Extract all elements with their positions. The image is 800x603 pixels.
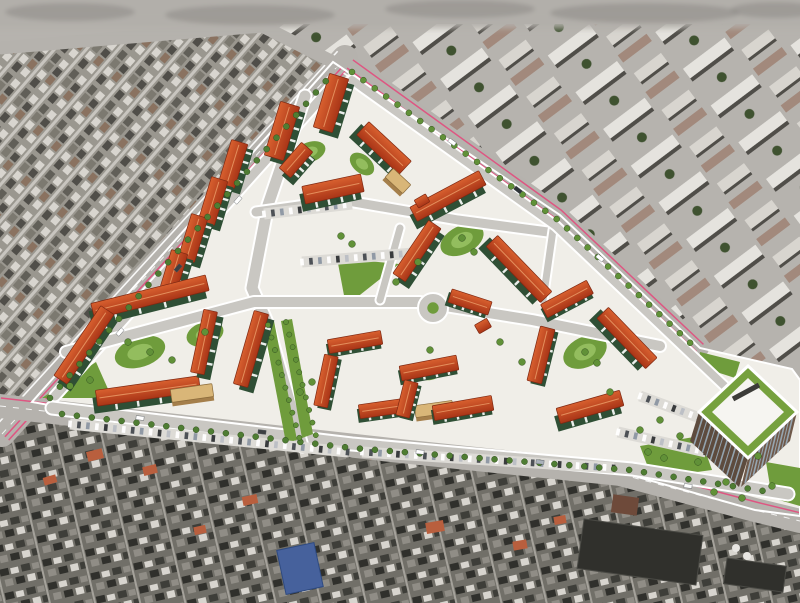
parked-car	[289, 207, 293, 214]
tree	[126, 304, 132, 310]
tree	[645, 449, 652, 456]
tree	[290, 410, 295, 415]
tree	[47, 395, 53, 401]
car	[416, 450, 424, 455]
aerial-masterplan-image	[0, 0, 800, 603]
tree	[594, 360, 601, 367]
tree	[508, 183, 514, 189]
tree	[205, 214, 211, 220]
tree	[307, 407, 312, 412]
tree	[254, 157, 260, 163]
parked-car	[140, 428, 144, 435]
parked-car	[327, 256, 331, 263]
tree	[274, 135, 280, 141]
tree	[661, 455, 668, 462]
tree	[394, 102, 400, 108]
blur-blob	[385, 0, 535, 18]
tree	[276, 360, 281, 365]
parked-car	[372, 253, 376, 260]
parked-car	[175, 431, 179, 438]
parked-car	[602, 464, 606, 471]
tree	[286, 398, 291, 403]
tree	[715, 481, 721, 487]
tree	[313, 90, 319, 96]
tree	[554, 216, 560, 222]
parked-car	[336, 256, 340, 263]
tree	[596, 465, 602, 471]
tree	[677, 330, 683, 336]
tree	[309, 379, 316, 386]
parked-car	[274, 441, 278, 448]
tree	[87, 377, 94, 384]
tree	[646, 302, 652, 308]
parked-car	[95, 423, 99, 430]
tree	[760, 488, 766, 494]
tree	[415, 259, 422, 266]
tree	[214, 203, 220, 209]
tree	[402, 449, 408, 455]
tree	[193, 427, 199, 433]
parked-car	[337, 447, 341, 454]
tree	[338, 233, 345, 240]
parked-car	[381, 252, 385, 259]
tree	[89, 414, 95, 420]
tree	[636, 292, 642, 298]
tree	[208, 428, 214, 434]
tree	[393, 279, 400, 286]
tree	[521, 459, 527, 465]
parked-car	[104, 424, 108, 431]
tree	[492, 456, 498, 462]
parked-car	[157, 429, 161, 436]
tree	[297, 370, 302, 375]
tree	[349, 69, 355, 75]
tree	[656, 472, 662, 478]
tree	[169, 357, 176, 364]
tree	[360, 77, 366, 83]
tree	[165, 259, 171, 265]
tree	[406, 110, 412, 116]
tree	[234, 180, 240, 186]
car	[258, 430, 266, 435]
tree	[615, 273, 621, 279]
tree	[641, 469, 647, 475]
tree	[700, 479, 706, 485]
tree	[67, 383, 74, 390]
tree	[269, 335, 274, 340]
parked-car	[113, 425, 117, 432]
blur-blob	[5, 3, 135, 21]
parked-car	[148, 429, 152, 436]
tree	[477, 455, 483, 461]
tree	[677, 433, 684, 440]
tree	[566, 462, 572, 468]
tree	[223, 430, 229, 436]
tree	[119, 418, 125, 424]
tree	[283, 385, 288, 390]
tree	[564, 225, 570, 231]
tree	[104, 416, 110, 422]
tree	[585, 244, 591, 250]
tree	[145, 282, 151, 288]
parked-car	[399, 251, 403, 258]
tree	[283, 319, 288, 324]
aerial-masterplan-screenshot	[0, 0, 800, 603]
tree	[637, 427, 644, 434]
tree	[163, 423, 169, 429]
storage-tank	[743, 552, 751, 560]
tree	[769, 483, 776, 490]
tree	[459, 235, 466, 242]
tree	[695, 459, 702, 466]
tree	[195, 225, 201, 231]
roundabout-green	[427, 302, 438, 313]
parked-car	[486, 456, 490, 463]
parked-car	[122, 426, 126, 433]
tree	[417, 118, 423, 124]
tree	[383, 94, 389, 100]
tree	[279, 372, 284, 377]
tree	[349, 241, 356, 248]
tree	[574, 235, 580, 241]
tree	[290, 345, 295, 350]
tree	[687, 340, 693, 346]
tree	[685, 476, 691, 482]
tree	[519, 359, 526, 366]
tree	[77, 361, 83, 367]
tree	[463, 151, 469, 157]
tree	[297, 435, 302, 440]
parked-car	[280, 208, 284, 215]
parked-car	[345, 255, 349, 262]
car	[536, 460, 544, 465]
parked-car	[265, 440, 269, 447]
tree	[471, 249, 478, 256]
parked-car	[211, 435, 215, 442]
parked-car	[131, 427, 135, 434]
tree	[447, 453, 453, 459]
tree	[175, 248, 181, 254]
tree	[312, 441, 318, 447]
tree	[497, 175, 503, 181]
parked-car	[220, 436, 224, 443]
tree	[303, 395, 308, 400]
parked-car	[202, 434, 206, 441]
parked-car	[378, 450, 382, 457]
tree	[474, 159, 480, 165]
tree	[148, 421, 154, 427]
tree	[723, 479, 730, 486]
tree	[244, 169, 250, 175]
tree	[310, 420, 315, 425]
tree	[224, 191, 230, 197]
tree	[238, 432, 244, 438]
tree	[282, 437, 288, 443]
tree	[178, 425, 184, 431]
parked-car	[318, 257, 322, 264]
parked-car	[576, 462, 580, 469]
parked-car	[256, 439, 260, 446]
tree	[293, 112, 299, 118]
parked-car	[531, 459, 535, 466]
tree	[427, 347, 434, 354]
parked-car	[271, 209, 275, 216]
tree	[293, 357, 298, 362]
tree	[264, 146, 270, 152]
tree	[67, 372, 73, 378]
tree	[657, 417, 664, 424]
tree	[605, 264, 611, 270]
car	[684, 484, 692, 489]
tree	[626, 467, 632, 473]
parked-car	[262, 210, 266, 217]
tree	[86, 350, 92, 356]
parked-car	[247, 438, 251, 445]
parked-car	[363, 253, 367, 260]
parked-car	[77, 421, 81, 428]
tree	[342, 444, 348, 450]
tree	[607, 389, 614, 396]
tree	[272, 347, 277, 352]
tree	[626, 283, 632, 289]
tree	[136, 293, 142, 299]
car	[136, 416, 144, 421]
parked-car	[292, 443, 296, 450]
tree	[730, 483, 736, 489]
tree	[507, 457, 513, 463]
parked-car	[558, 461, 562, 468]
parked-car	[441, 454, 445, 461]
tree	[297, 389, 304, 396]
tree	[147, 349, 154, 356]
tree	[656, 311, 662, 317]
tree	[327, 442, 333, 448]
parked-car	[513, 458, 517, 465]
tree	[462, 454, 468, 460]
parked-car	[298, 206, 302, 213]
tree	[440, 134, 446, 140]
tree	[667, 321, 673, 327]
top-blur-strip	[0, 0, 800, 32]
parked-car	[309, 258, 313, 265]
tree	[323, 78, 329, 84]
brown-roof-building	[611, 494, 639, 515]
parked-car	[354, 254, 358, 261]
parked-car	[229, 437, 233, 444]
parked-car	[166, 430, 170, 437]
blur-blob	[550, 3, 740, 23]
tree	[106, 327, 112, 333]
tree	[745, 485, 751, 491]
parked-car	[390, 251, 394, 258]
parked-car	[300, 258, 304, 265]
parked-car	[184, 432, 188, 439]
tree	[59, 411, 65, 417]
tree	[582, 349, 589, 356]
tree	[57, 384, 63, 390]
parked-car	[319, 446, 323, 453]
tree	[313, 433, 318, 438]
tree	[372, 85, 378, 91]
storage-tank	[732, 544, 740, 552]
tree	[303, 101, 309, 107]
parked-car	[86, 422, 90, 429]
tree	[265, 322, 270, 327]
tree	[287, 332, 292, 337]
tree	[283, 123, 289, 129]
tree	[611, 466, 617, 472]
tree	[497, 339, 504, 346]
tree	[531, 200, 537, 206]
tree	[551, 461, 557, 467]
parked-car	[193, 433, 197, 440]
tree	[116, 316, 122, 322]
tree	[74, 413, 80, 419]
tree	[387, 448, 393, 454]
tree	[357, 446, 363, 452]
tree	[185, 237, 191, 243]
tree	[300, 382, 305, 387]
tree	[671, 474, 677, 480]
tree	[202, 329, 209, 336]
tree	[96, 338, 102, 344]
tree	[581, 463, 587, 469]
parked-car	[468, 455, 472, 462]
blur-blob	[165, 5, 335, 25]
tree	[739, 495, 746, 502]
tree	[432, 452, 438, 458]
tree	[125, 339, 132, 346]
parked-car	[238, 438, 242, 445]
tree	[155, 271, 161, 277]
tree	[293, 423, 298, 428]
tree	[755, 453, 762, 460]
parked-car	[396, 451, 400, 458]
tree	[253, 434, 259, 440]
tree	[542, 208, 548, 214]
parked-car	[68, 420, 72, 427]
tree	[133, 420, 139, 426]
tree	[372, 447, 378, 453]
tree	[429, 126, 435, 132]
tree	[268, 435, 274, 441]
tree	[711, 489, 718, 496]
tree	[485, 167, 491, 173]
